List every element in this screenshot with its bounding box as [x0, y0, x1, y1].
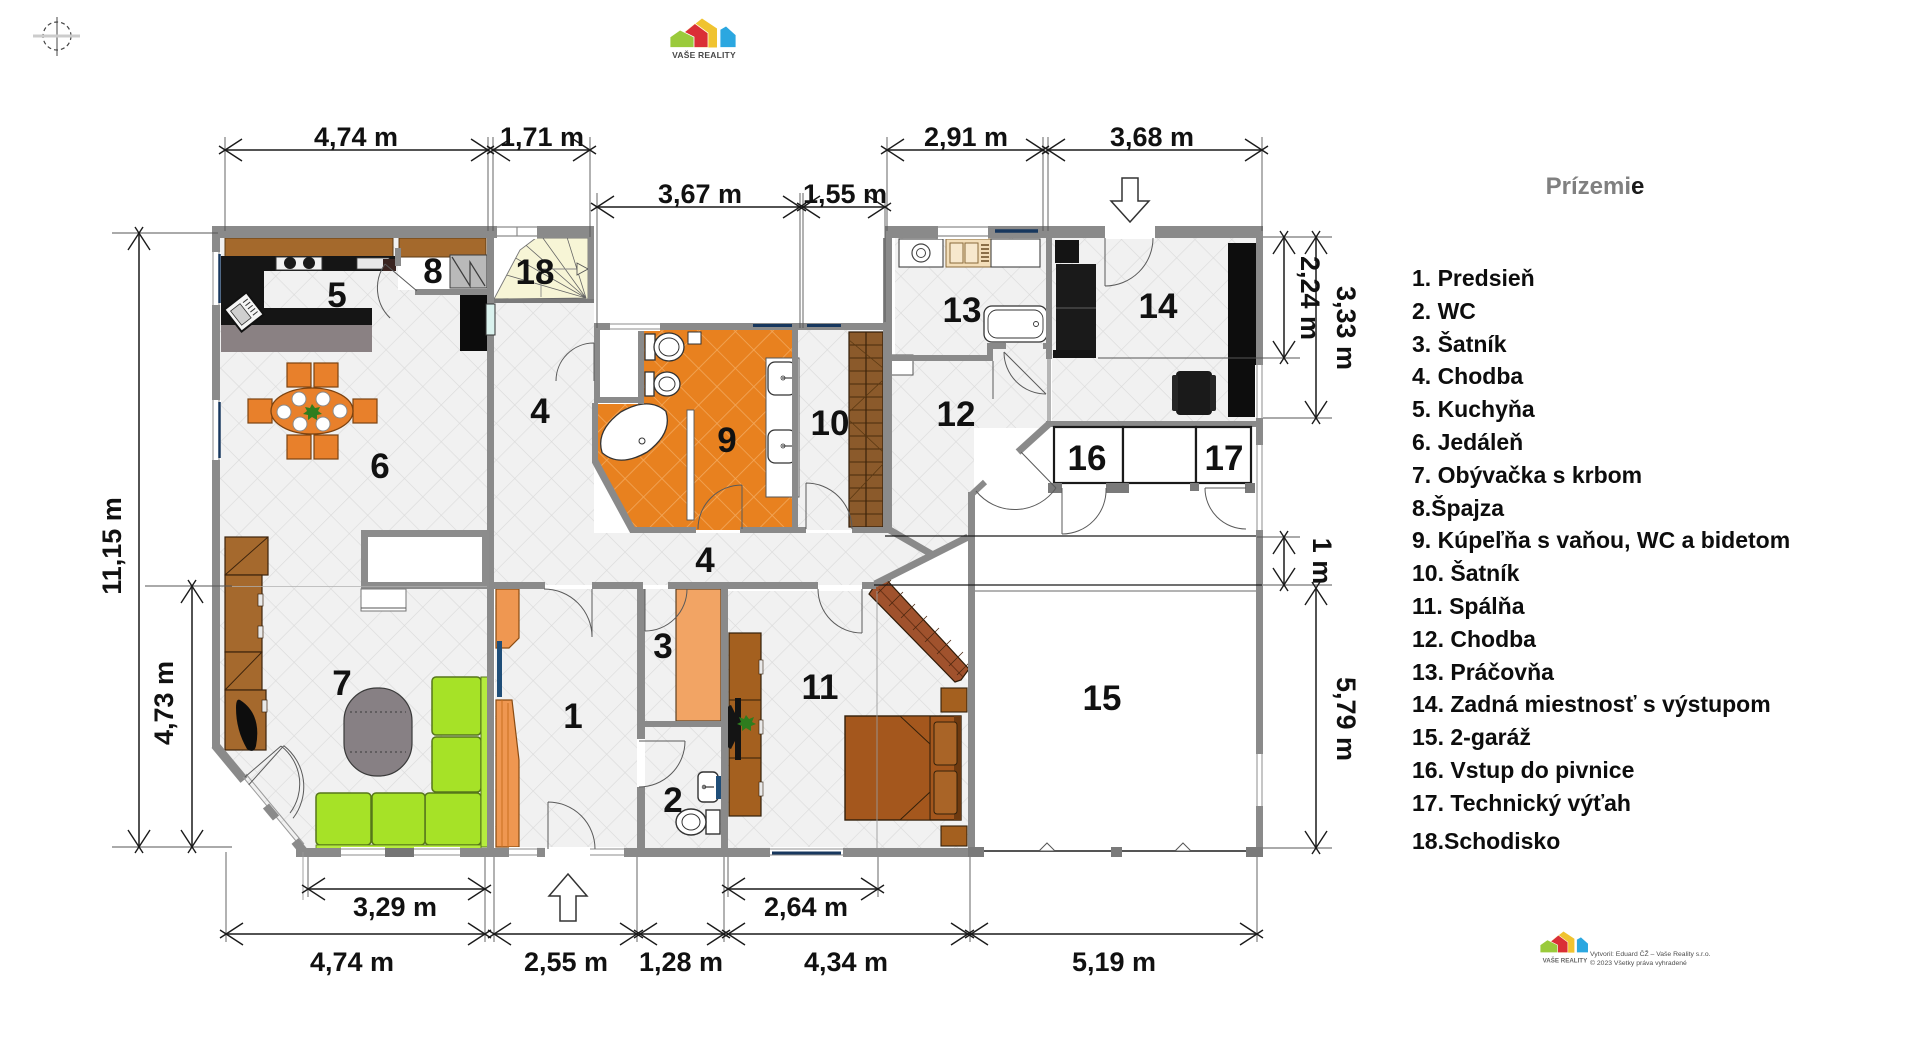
svg-text:4. Chodba: 4. Chodba [1412, 363, 1523, 389]
svg-text:14: 14 [1139, 287, 1178, 326]
svg-text:18: 18 [516, 253, 555, 292]
svg-text:3,67 m: 3,67 m [658, 179, 742, 209]
svg-text:1. Predsieň: 1. Predsieň [1412, 265, 1535, 291]
svg-text:6. Jedáleň: 6. Jedáleň [1412, 429, 1523, 455]
svg-text:6: 6 [370, 447, 389, 486]
svg-text:1 m: 1 m [1307, 538, 1337, 585]
svg-text:18.Schodisko: 18.Schodisko [1412, 828, 1560, 854]
svg-text:9: 9 [717, 421, 736, 460]
svg-text:8: 8 [423, 252, 442, 291]
svg-text:Vytvoril: Eduard ČŽ – Vaše Rea: Vytvoril: Eduard ČŽ – Vaše Reality s.r.o… [1590, 949, 1711, 958]
svg-text:4,74 m: 4,74 m [310, 947, 394, 977]
svg-text:5: 5 [327, 276, 346, 315]
svg-text:4: 4 [530, 392, 550, 431]
svg-text:13: 13 [943, 291, 982, 330]
svg-text:16. Vstup do pivnice: 16. Vstup do pivnice [1412, 757, 1634, 783]
svg-text:© 2023 Všetky práva vyhradené: © 2023 Všetky práva vyhradené [1590, 959, 1687, 967]
svg-text:2,91 m: 2,91 m [924, 122, 1008, 152]
svg-text:4,74 m: 4,74 m [314, 122, 398, 152]
svg-text:5. Kuchyňa: 5. Kuchyňa [1412, 396, 1535, 422]
svg-text:5,19 m: 5,19 m [1072, 947, 1156, 977]
svg-text:11,15 m: 11,15 m [97, 497, 127, 595]
svg-text:2: 2 [663, 781, 682, 820]
svg-text:1: 1 [563, 697, 582, 736]
svg-text:2,64 m: 2,64 m [764, 892, 848, 922]
svg-text:8.Špajza: 8.Špajza [1412, 494, 1504, 521]
svg-text:3. Šatník: 3. Šatník [1412, 330, 1507, 357]
svg-text:1,55 m: 1,55 m [803, 179, 887, 209]
svg-text:3,29 m: 3,29 m [353, 892, 437, 922]
svg-text:11: 11 [802, 668, 839, 707]
svg-text:17. Technický výťah: 17. Technický výťah [1412, 790, 1631, 816]
svg-text:1,71 m: 1,71 m [500, 122, 584, 152]
svg-text:7: 7 [332, 664, 351, 703]
svg-text:VAŠE REALITY: VAŠE REALITY [1543, 957, 1588, 965]
svg-text:5,79 m: 5,79 m [1331, 677, 1361, 761]
svg-text:15: 15 [1083, 679, 1122, 718]
svg-text:VAŠE REALITY: VAŠE REALITY [672, 49, 736, 60]
svg-text:9. Kúpeľňa s vaňou, WC a bidet: 9. Kúpeľňa s vaňou, WC a bidetom [1412, 527, 1790, 553]
svg-text:16: 16 [1068, 439, 1107, 478]
svg-text:4,34 m: 4,34 m [804, 947, 888, 977]
svg-text:14. Zadná miestnosť s výstupom: 14. Zadná miestnosť s výstupom [1412, 691, 1771, 717]
svg-text:12: 12 [937, 395, 976, 434]
svg-text:10: 10 [811, 404, 850, 443]
svg-text:15. 2-garáž: 15. 2-garáž [1412, 724, 1531, 750]
svg-text:2,55 m: 2,55 m [524, 947, 608, 977]
svg-text:2. WC: 2. WC [1412, 298, 1476, 324]
svg-text:12. Chodba: 12. Chodba [1412, 626, 1536, 652]
svg-text:3: 3 [653, 627, 672, 666]
svg-text:3,68 m: 3,68 m [1110, 122, 1194, 152]
svg-text:11. Spálňa: 11. Spálňa [1412, 593, 1525, 619]
svg-text:13. Práčovňa: 13. Práčovňa [1412, 659, 1554, 685]
svg-text:17: 17 [1205, 439, 1244, 478]
svg-text:Prízemie: Prízemie [1546, 173, 1645, 200]
svg-text:7. Obývačka s krbom: 7. Obývačka s krbom [1412, 462, 1642, 488]
svg-text:3,33 m: 3,33 m [1331, 286, 1361, 370]
svg-text:4: 4 [695, 541, 715, 580]
svg-text:10. Šatník: 10. Šatník [1412, 559, 1520, 586]
svg-text:1,28 m: 1,28 m [639, 947, 723, 977]
svg-text:2,24 m: 2,24 m [1295, 256, 1325, 340]
svg-text:4,73 m: 4,73 m [149, 661, 179, 745]
